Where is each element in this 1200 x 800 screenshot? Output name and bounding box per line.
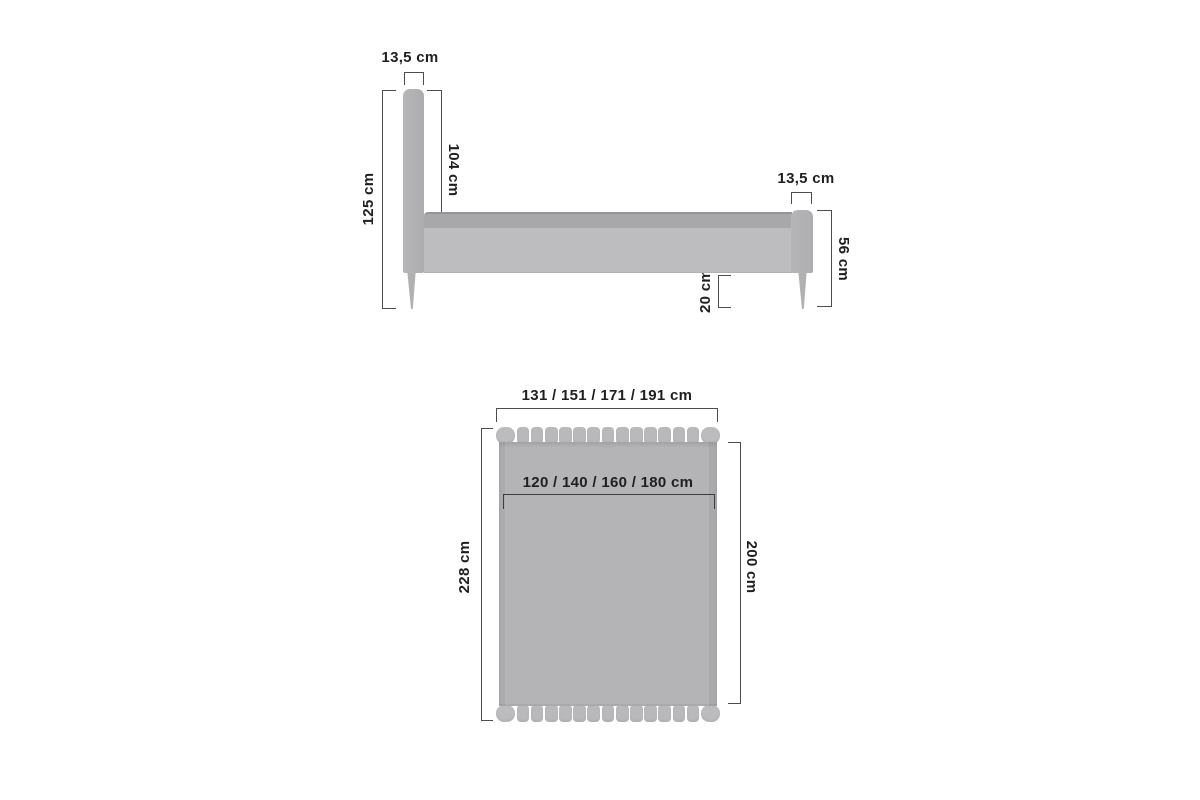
slat bbox=[517, 705, 530, 722]
dim-line-mattress-width bbox=[503, 494, 715, 509]
dim-label-headboard-height: 125 cm bbox=[360, 164, 378, 234]
dim-label-mattress-width: 120 / 140 / 160 / 180 cm bbox=[499, 474, 717, 492]
side-rail bbox=[424, 228, 792, 273]
slat bbox=[630, 705, 643, 722]
slat bbox=[701, 705, 720, 722]
slat bbox=[531, 705, 544, 722]
dim-bracket-mattress-length bbox=[728, 442, 741, 704]
dim-bracket-footboard-height bbox=[817, 210, 832, 307]
slat bbox=[644, 705, 657, 722]
mattress-side bbox=[424, 212, 792, 228]
dim-label-headboard-width: 13,5 cm bbox=[370, 49, 450, 67]
dim-bracket-outer-length bbox=[481, 428, 493, 721]
slat bbox=[496, 705, 515, 722]
slat bbox=[616, 705, 629, 722]
slat bbox=[545, 705, 558, 722]
slat bbox=[559, 705, 572, 722]
slat bbox=[602, 705, 615, 722]
headboard-panel bbox=[403, 89, 424, 273]
dim-label-footboard-width: 13,5 cm bbox=[766, 170, 846, 188]
slat bbox=[687, 705, 700, 722]
dim-label-outer-width: 131 / 151 / 171 / 191 cm bbox=[496, 387, 718, 405]
dim-label-headboard-to-rail: 104 cm bbox=[444, 135, 462, 205]
slat bbox=[658, 705, 671, 722]
dim-label-outer-length: 228 cm bbox=[456, 532, 474, 602]
dim-label-mattress-length: 200 cm bbox=[742, 532, 760, 602]
dim-bracket-headboard-height bbox=[382, 90, 396, 309]
footboard-slats bbox=[496, 705, 720, 722]
bed-dimension-diagram: 13,5 cm 125 cm 104 cm 26 cm 13,5 cm 56 c… bbox=[0, 0, 1200, 800]
slat bbox=[573, 705, 586, 722]
footboard-leg bbox=[796, 272, 809, 309]
dim-bracket-headboard-width bbox=[404, 72, 424, 85]
dim-bracket-floor-clearance bbox=[718, 275, 731, 308]
slat bbox=[587, 705, 600, 722]
headboard-leg bbox=[405, 272, 418, 309]
dim-bracket-outer-width bbox=[496, 408, 718, 422]
dim-bracket-footboard-width bbox=[791, 192, 812, 204]
dim-label-footboard-height: 56 cm bbox=[834, 224, 852, 294]
footboard-panel bbox=[791, 210, 813, 273]
slat bbox=[673, 705, 686, 722]
